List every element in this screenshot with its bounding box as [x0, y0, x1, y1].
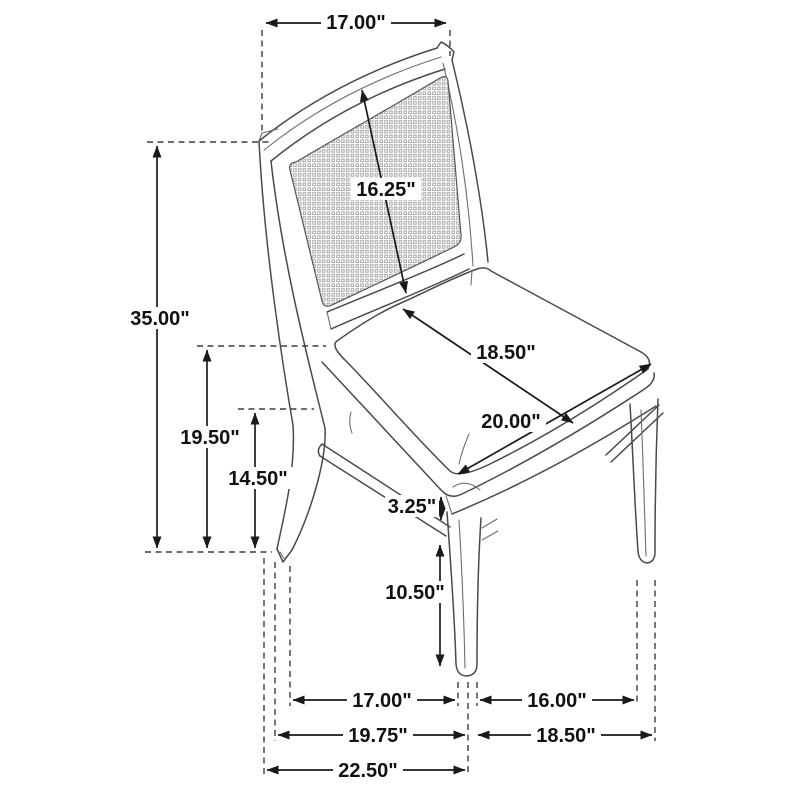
label-back-width: 17.00" [326, 12, 386, 34]
label-side-depth: 18.50" [536, 725, 596, 747]
label-frame-height: 14.50" [228, 468, 288, 490]
diagram-canvas: 17.00" 16.25" 35.00" 18.50" 20.00" 19.50… [0, 0, 800, 800]
label-depth-mid: 19.75" [348, 725, 408, 747]
label-side-span: 16.00" [527, 690, 587, 712]
label-seat-width: 20.00" [481, 411, 541, 433]
label-seat-depth: 18.50" [476, 342, 536, 364]
label-frame-thickness: 3.25" [388, 496, 436, 518]
side-leg [630, 399, 658, 563]
chair-dimension-diagram: 17.00" 16.25" 35.00" 18.50" 20.00" 19.50… [0, 0, 800, 800]
label-leg-clearance: 10.50" [385, 582, 445, 604]
label-overall-depth: 22.50" [338, 760, 398, 782]
label-overall-height: 35.00" [130, 308, 190, 330]
front-leg [447, 483, 481, 676]
label-front-span: 17.00" [352, 690, 412, 712]
label-seat-height: 19.50" [180, 427, 240, 449]
label-back-panel-height: 16.25" [356, 179, 416, 201]
chair-drawing [259, 42, 663, 676]
